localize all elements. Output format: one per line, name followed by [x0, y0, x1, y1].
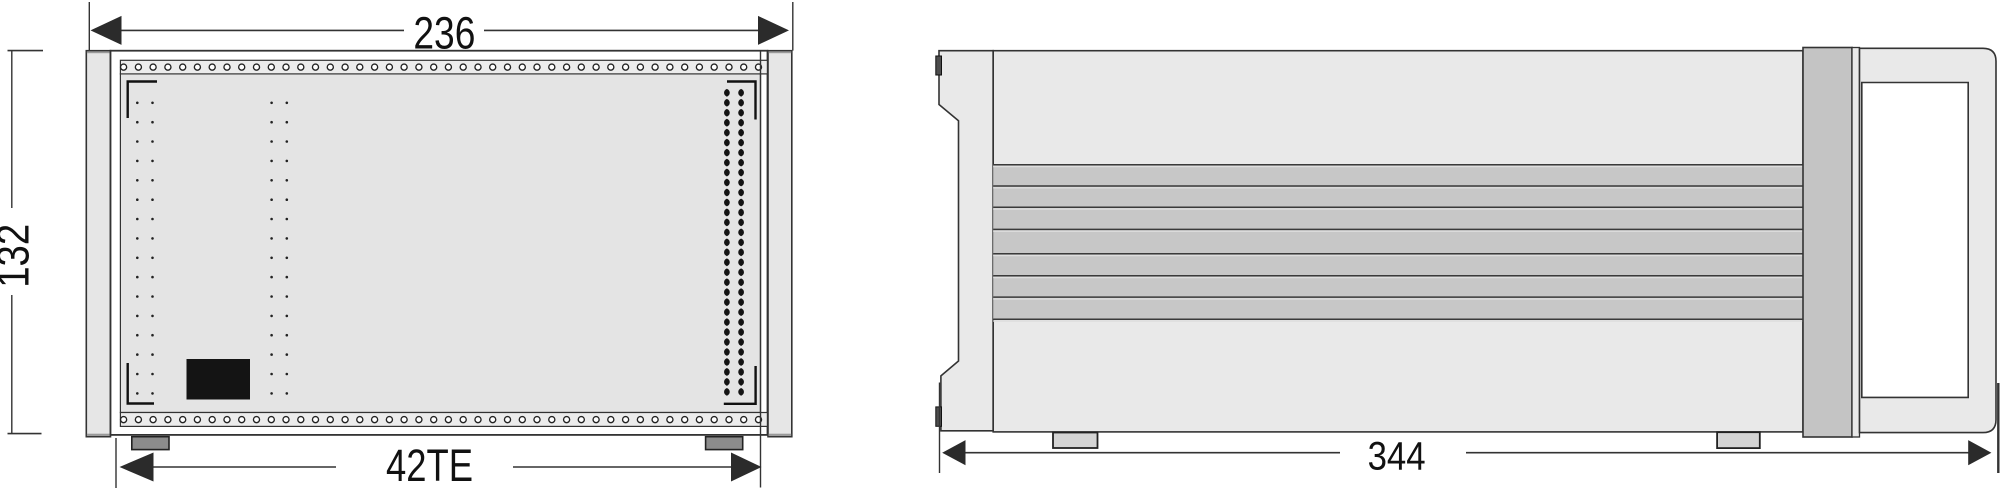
svg-text:42TE: 42TE: [386, 440, 473, 491]
svg-text:132: 132: [0, 224, 39, 288]
svg-text:344: 344: [1368, 435, 1426, 479]
